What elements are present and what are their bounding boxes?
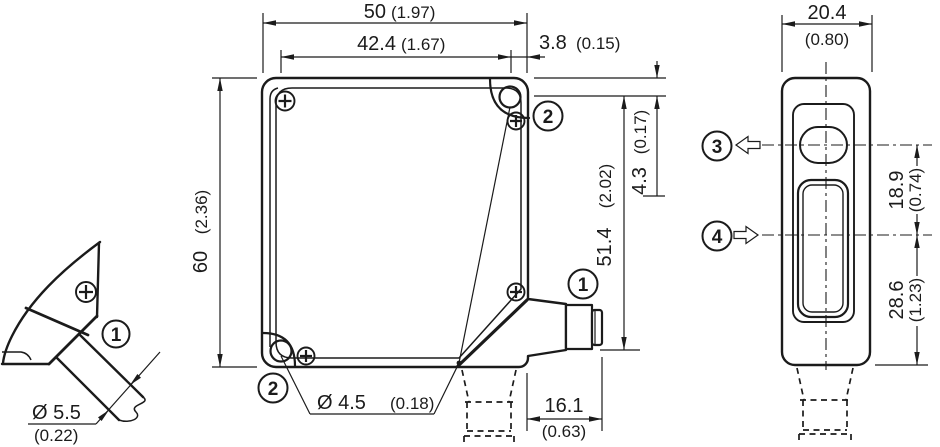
- dim-hole-offset-mm: 42.4: [357, 33, 396, 55]
- callout-connector-label: 1: [578, 275, 589, 296]
- callout-mounting-hole-bottom: 2: [259, 374, 288, 403]
- dim-axis-gap-mm: 18.9: [886, 171, 908, 210]
- cable-break-squiggle: [119, 397, 145, 421]
- callout-receiver-axis: 4: [703, 222, 759, 251]
- dashed-connector-option: [797, 368, 853, 441]
- screw-icon: [76, 282, 96, 302]
- housing-edge: [97, 243, 99, 317]
- dim-depth-mm: 20.4: [808, 2, 847, 24]
- dim-width-mm: 50: [364, 1, 386, 23]
- dim-hole-offset-in: (1.67): [401, 35, 445, 54]
- dim-connector-length-in: (0.63): [542, 422, 586, 441]
- screw-icon: [508, 284, 525, 301]
- light-direction-out-icon: [736, 137, 760, 154]
- dim-edge-offset-in: (0.15): [576, 34, 620, 53]
- dashed-connector-option: [462, 370, 516, 444]
- callout-mounting-hole-bottom-label: 2: [268, 379, 279, 400]
- dim-edge-offset-mm: 3.8: [539, 32, 567, 54]
- housing-inner-line: [2, 352, 31, 360]
- dim-receiver-bottom-in: (1.23): [906, 278, 925, 322]
- light-direction-in-icon: [734, 227, 758, 244]
- dim-cable-diameter-mm: Ø 5.5: [32, 402, 81, 424]
- screw-icon: [298, 348, 315, 365]
- callout-connector: 1: [569, 270, 598, 299]
- callout-receiver-axis-label: 4: [712, 227, 723, 248]
- dim-hole-diameter-in: (0.18): [390, 394, 434, 413]
- callout-sender-axis: 3: [703, 132, 761, 161]
- dimensional-drawing: 1 Ø 5.5 (0.22): [0, 0, 940, 447]
- dim-hole-top-mm: 4.3: [629, 167, 651, 195]
- dim-hole-diameter-mm: Ø 4.5: [317, 392, 366, 414]
- dim-depth-in: (0.80): [805, 30, 849, 49]
- dim-axis-gap-in: (0.74): [906, 168, 925, 212]
- dim-receiver-bottom-mm: 28.6: [886, 281, 908, 320]
- front-view: 1 2 2 Ø 4.5 (0.18): [259, 78, 603, 444]
- dim-height-in: (2.36): [192, 190, 211, 234]
- cable-exit-detail-view: 1 Ø 5.5 (0.22): [2, 242, 160, 445]
- side-view: 3 4: [703, 62, 933, 441]
- gland-shoulder-edge: [26, 308, 88, 335]
- m12-connector: [566, 305, 602, 349]
- callout-mounting-hole-top-label: 2: [543, 107, 554, 128]
- dim-connector-axis-mm: 51.4: [594, 228, 616, 267]
- screw-icon: [508, 113, 525, 130]
- leader-dot: [457, 361, 462, 366]
- dim-connector-axis-in: (2.02): [596, 164, 615, 208]
- dim-connector-length-mm: 16.1: [545, 395, 584, 417]
- dim-height-mm: 60: [190, 251, 212, 273]
- dim-cable-diameter-in: (0.22): [34, 426, 78, 445]
- callout-sender-axis-label: 3: [712, 137, 723, 158]
- dim-width-in: (1.97): [391, 3, 435, 22]
- callout-cable-gland-label: 1: [111, 325, 122, 346]
- dim-hole-top-in: (0.17): [631, 110, 650, 154]
- callout-cable-gland: 1: [103, 321, 130, 348]
- callout-mounting-hole-top: 2: [534, 102, 563, 131]
